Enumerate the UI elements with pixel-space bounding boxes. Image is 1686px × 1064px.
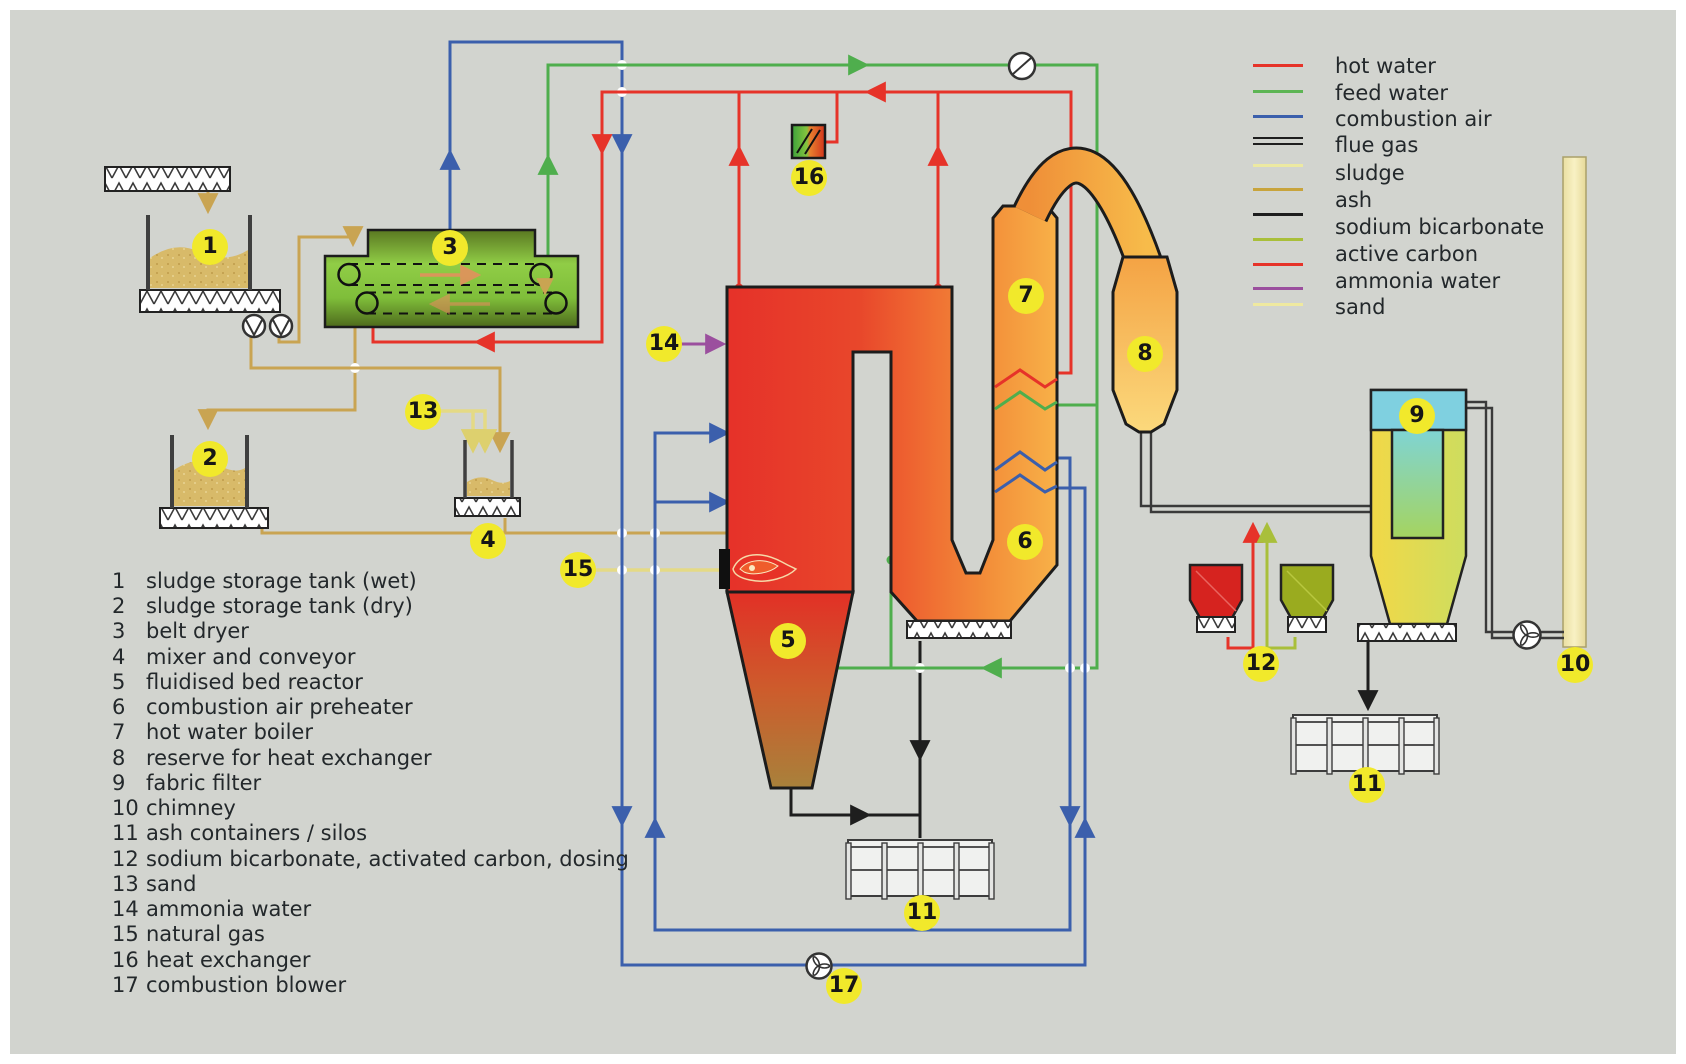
badge-4: 4: [470, 523, 506, 559]
list-item-label: sand: [146, 872, 196, 896]
list-item-number: 4: [112, 645, 125, 669]
list-item-label: ash containers / silos: [146, 821, 367, 845]
legend-label: sand: [1335, 295, 1385, 323]
list-item-number: 1: [112, 569, 125, 593]
list-item-number: 17: [112, 973, 139, 997]
badge-10: 10: [1557, 647, 1593, 683]
legend-swatch-sodium-bicarbonate: [1253, 213, 1303, 216]
list-item-label: sludge storage tank (dry): [146, 594, 413, 618]
list-item-number: 11: [112, 821, 139, 845]
legend-swatch-flue-gas: [1253, 137, 1303, 145]
list-item-label: ammonia water: [146, 897, 311, 921]
badge-14: 14: [646, 326, 682, 362]
legend-label: hot water: [1335, 54, 1436, 82]
legend-label: ash: [1335, 188, 1372, 216]
list-item-label: sludge storage tank (wet): [146, 569, 417, 593]
chimney: [1563, 157, 1586, 647]
dosing-containers: [1190, 565, 1333, 618]
list-item-number: 16: [112, 948, 139, 972]
list-item-label: hot water boiler: [146, 720, 313, 744]
list-item-number: 9: [112, 771, 125, 795]
legend-label: sludge: [1335, 161, 1405, 189]
list-item-label: belt dryer: [146, 619, 249, 643]
list-item-number: 12: [112, 847, 139, 871]
legend-swatch-combustion-air: [1253, 115, 1303, 118]
ash-lines: [791, 641, 1368, 838]
list-item-number: 14: [112, 897, 139, 921]
list-item-number: 6: [112, 695, 125, 719]
badge-16: 16: [791, 160, 827, 196]
legend-label: combustion air: [1335, 107, 1492, 135]
badge-9: 9: [1399, 398, 1435, 434]
carbon-conveyor: [1197, 617, 1235, 632]
legend-swatch-sludge: [1253, 164, 1303, 167]
badge-13: 13: [405, 394, 441, 430]
legend-swatch-sand: [1253, 287, 1303, 290]
badge-7: 7: [1008, 278, 1044, 314]
badge-1: 1: [192, 229, 228, 265]
list-item-number: 13: [112, 872, 139, 896]
legend-swatch-hot-water: [1253, 64, 1303, 67]
list-item-number: 8: [112, 746, 125, 770]
reactor-funnel: [727, 592, 853, 788]
feed-conveyor-top-left: [105, 167, 230, 191]
legend-swatch-active-carbon: [1253, 238, 1303, 241]
flue-gas-fan-icon: [1514, 622, 1541, 649]
list-item-number: 7: [112, 720, 125, 744]
badge-11-center: 11: [904, 895, 940, 931]
list-item-label: combustion air preheater: [146, 695, 413, 719]
process-flow-diagram: 1 2 3 4 5 6 7 8 9 10 11 12 13 14 15 16 1…: [0, 0, 1686, 1064]
badge-11-right: 11: [1349, 767, 1385, 803]
list-item-label: combustion blower: [146, 973, 346, 997]
ash-container-center: [846, 840, 994, 899]
badge-8: 8: [1127, 336, 1163, 372]
list-item-number: 5: [112, 670, 125, 694]
list-item-label: heat exchanger: [146, 948, 311, 972]
list-item-label: fabric filter: [146, 771, 261, 795]
legend-label: active carbon: [1335, 242, 1478, 270]
tank2-conveyor: [160, 508, 268, 528]
legend-swatch-feed-water: [1253, 90, 1303, 93]
reactor-bottom-conveyor: [907, 621, 1011, 638]
legend-label: sodium bicarbonate: [1335, 215, 1544, 243]
filter-bottom-conveyor: [1358, 624, 1456, 641]
badge-5: 5: [770, 623, 806, 659]
mixer-conveyor: [455, 498, 520, 516]
badge-6: 6: [1007, 524, 1043, 560]
bicarbonate-conveyor: [1288, 617, 1326, 632]
list-item-label: natural gas: [146, 922, 265, 946]
list-item-label: reserve for heat exchanger: [146, 746, 432, 770]
list-item-number: 2: [112, 594, 125, 618]
badge-17: 17: [826, 968, 862, 1004]
legend-swatch-extra: [1253, 303, 1303, 306]
ash-container-right: [1291, 715, 1439, 774]
list-item-number: 10: [112, 796, 139, 820]
list-item-label: mixer and conveyor: [146, 645, 355, 669]
tank1-conveyor: [140, 290, 280, 312]
badge-15: 15: [560, 552, 596, 588]
list-item-number: 15: [112, 922, 139, 946]
badge-2: 2: [192, 441, 228, 477]
badge-3: 3: [432, 230, 468, 266]
list-item-label: sodium bicarbonate, activated carbon, do…: [146, 847, 629, 871]
legend-label: flue gas: [1335, 133, 1418, 161]
badge-12: 12: [1243, 646, 1279, 682]
list-item-label: chimney: [146, 796, 236, 820]
feed-water-pump-icon: [1009, 53, 1035, 79]
legend-swatch-ash: [1253, 188, 1303, 191]
legend-swatch-ammonia-water: [1253, 263, 1303, 266]
sludge-pump-2: [270, 315, 292, 337]
legend-label: feed water: [1335, 81, 1448, 109]
sludge-pump-1: [243, 315, 265, 337]
list-item-number: 3: [112, 619, 125, 643]
heat-exchanger-16: [792, 125, 825, 158]
legend-label: ammonia water: [1335, 269, 1500, 297]
list-item-label: fluidised bed reactor: [146, 670, 363, 694]
